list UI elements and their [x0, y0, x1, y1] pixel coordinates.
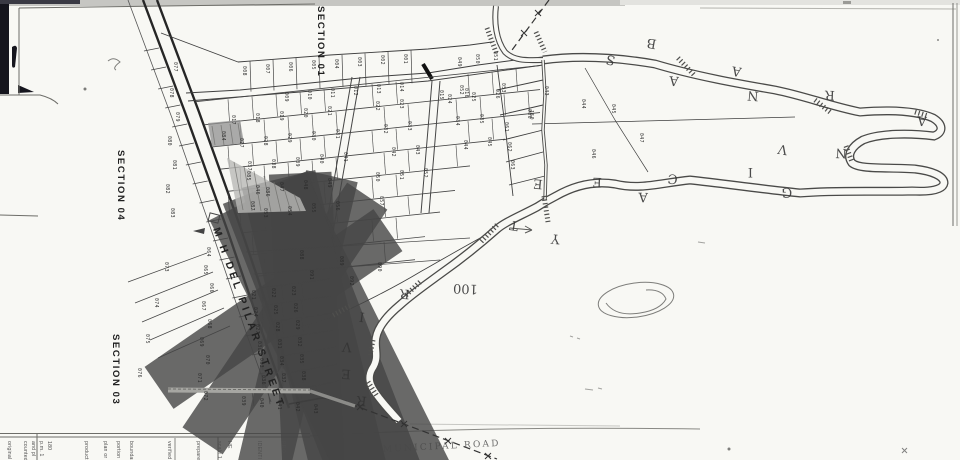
lot-number: 048 — [302, 180, 308, 190]
lot-number: 031 — [276, 339, 282, 349]
lot-number: 027 — [238, 138, 244, 148]
lot-number: 035 — [478, 114, 484, 124]
map-letter: R — [824, 87, 836, 102]
lot-number: 079 — [174, 112, 180, 122]
sheet-edges — [0, 3, 957, 460]
lot-number: 029 — [286, 133, 292, 143]
map-letter: N — [747, 87, 760, 103]
lot-100-label: 100 — [453, 280, 478, 296]
lot-number: 043 — [312, 404, 318, 414]
grid-line — [276, 141, 278, 162]
lot-number: 025 — [470, 92, 476, 102]
lot-number: 005 — [310, 60, 316, 70]
lot-number: 022 — [270, 288, 276, 298]
grid-line — [516, 69, 518, 91]
grid-line — [408, 150, 410, 171]
lot-number: 040 — [258, 398, 264, 408]
lot-number: 044 — [462, 140, 468, 150]
note-fragment: HE — [226, 441, 232, 449]
lot-number: 051 — [398, 170, 404, 180]
lot-number: 090 — [376, 262, 382, 272]
lot-number: 036 — [260, 375, 266, 385]
grid-line — [396, 218, 398, 239]
map-letter: E — [341, 366, 351, 381]
grid-line — [388, 52, 389, 85]
lot-number: 038 — [270, 159, 276, 169]
map-letter: E — [533, 175, 544, 191]
map-letter: N — [835, 145, 847, 160]
grid-line — [252, 144, 254, 165]
lot-number: 023 — [290, 286, 296, 296]
lot-number: 033 — [258, 358, 264, 368]
lot-number: 014 — [398, 82, 404, 92]
lot-number: 053 — [500, 83, 506, 93]
lot-number: 062 — [506, 142, 512, 152]
map-letter: V — [341, 338, 353, 354]
lot-number: 082 — [164, 184, 170, 194]
map-letter: R — [398, 285, 410, 301]
lot-number: 047 — [278, 182, 284, 192]
lot-number: 030 — [310, 131, 316, 141]
lot-number: 032 — [382, 124, 388, 134]
lot-number: 086 — [264, 187, 270, 197]
lot-number: 028 — [262, 136, 268, 146]
lot-number: 006 — [287, 62, 293, 72]
lot-number: 021 — [326, 106, 332, 116]
lot-number: 056 — [334, 201, 340, 211]
note-fragment: products — [83, 441, 89, 460]
lot-number: 054 — [286, 206, 292, 216]
lot-number: 076 — [136, 368, 142, 378]
map-letter: A — [730, 62, 743, 79]
grid-line — [228, 99, 230, 121]
map-letter: C — [667, 170, 678, 186]
lot-number: 016 — [463, 88, 469, 98]
lot-number: 035 — [298, 354, 304, 364]
lot-number: 061 — [503, 122, 509, 132]
lot-number: 017 — [230, 115, 236, 125]
lot-number: 024 — [252, 307, 258, 317]
lot-number: 015 — [438, 90, 444, 100]
lot-number: 050 — [474, 54, 480, 64]
lot-number: 037 — [246, 161, 252, 171]
lot-number: 046 — [590, 149, 596, 159]
grid-line — [196, 66, 540, 102]
map-letter: E — [592, 174, 602, 189]
lot-number: 150 — [528, 110, 534, 120]
lot-number: 029 — [294, 320, 300, 330]
lot-number: 027 — [254, 324, 260, 334]
benchmark-arrow — [193, 228, 205, 234]
lot-number: 020 — [302, 108, 308, 118]
scattered-map-letters: SBAANRAVNICEGAETYRIVER — [341, 34, 928, 408]
grid-line — [342, 55, 343, 87]
grid-line — [300, 92, 302, 114]
lot-number: 031 — [334, 129, 340, 139]
lot-number: 085 — [245, 171, 251, 181]
map-letter: B — [646, 34, 658, 50]
grid-line — [250, 61, 251, 91]
lot-number: 064 — [205, 247, 211, 257]
lot-number: 071 — [196, 373, 202, 383]
lot-number: 092 — [348, 276, 354, 286]
lot-number: 041 — [342, 152, 348, 162]
section-03-label: SECTION 03 — [110, 334, 121, 405]
lot-number: 042 — [390, 147, 396, 157]
lot-number: 066 — [208, 283, 214, 293]
lot-number: 026 — [292, 303, 298, 313]
map-letter: A — [668, 72, 680, 88]
grid-line — [372, 177, 374, 198]
grid-line — [396, 82, 398, 104]
lot-number: 049 — [456, 57, 462, 67]
grid-line — [411, 50, 412, 83]
lot-number: 026 — [494, 89, 500, 99]
map-letter: I — [748, 164, 753, 179]
lot-number: 010 — [306, 90, 312, 100]
lot-number: 042 — [294, 402, 300, 412]
lot-number: 053 — [262, 208, 268, 218]
grid-line — [300, 139, 302, 160]
grid-line — [492, 119, 494, 140]
lot-number: 089 — [338, 256, 344, 266]
lot-number: 046 — [254, 185, 260, 195]
lot-number: 011 — [329, 88, 335, 98]
grid-line — [372, 131, 374, 152]
lot-number: 047 — [638, 133, 644, 143]
lot-number: 033 — [406, 121, 412, 131]
note-fragment: portion used — [115, 441, 121, 460]
note-fragment: IDENTI — [256, 441, 262, 459]
map-letter: A — [916, 112, 928, 128]
lot-number: 024 — [446, 94, 452, 104]
grid-line — [135, 272, 213, 303]
note-fragment: 180 — [46, 441, 52, 450]
grid-line — [492, 72, 494, 94]
lot-number: 013 — [375, 84, 381, 94]
section-04-label: SECTION 04 — [115, 150, 126, 221]
lot-number: 070 — [204, 355, 210, 365]
lot-number: 007 — [264, 64, 270, 74]
grid-line — [384, 153, 386, 174]
lot-number: 091 — [308, 270, 314, 280]
grid-line — [365, 53, 366, 85]
scanner-artifacts — [0, 0, 960, 94]
grid-line — [372, 84, 374, 106]
note-fragment: PRO — [280, 441, 286, 453]
lot-number: 081 — [171, 160, 177, 170]
lot-number: 068 — [206, 319, 212, 329]
lot-number: 088 — [298, 250, 304, 260]
lot-number: 057 — [378, 196, 384, 206]
pencil-oval — [596, 278, 676, 322]
grid-line — [276, 94, 278, 116]
lot-number: 074 — [153, 298, 159, 308]
lot-number: 002 — [379, 55, 385, 65]
lot-number: 034 — [454, 116, 460, 126]
lot-number: 043 — [543, 86, 549, 96]
note-fragment: counted — [22, 441, 28, 460]
lot-number: 030 — [256, 341, 262, 351]
map-canvas: SECTION 01 SECTION 04 SECTION 03 M H DEL… — [0, 0, 960, 460]
grid-line — [324, 89, 326, 111]
lot-number: 043 — [414, 145, 420, 155]
lot-number: 041 — [276, 400, 282, 410]
section-01-label: SECTION 01 — [315, 6, 326, 77]
grid-line — [396, 129, 398, 150]
lot-number: 008 — [241, 66, 247, 76]
lot-number: 065 — [202, 265, 208, 275]
note-fragment: prepared — [195, 441, 201, 460]
lot-number: 045 — [610, 104, 616, 114]
lot-number: 075 — [144, 334, 150, 344]
lot-number: 039 — [240, 396, 246, 406]
note-fragment: and pl — [30, 441, 36, 456]
lot-number: 069 — [198, 337, 204, 347]
x-marks — [357, 10, 907, 459]
lot-number: 019 — [278, 111, 284, 121]
note-fragment: plan or being — [102, 441, 108, 460]
lot-number: 022 — [374, 101, 380, 111]
note-fragment: original — [6, 441, 12, 459]
lot-number: 063 — [509, 160, 515, 170]
lot-number: 044 — [580, 99, 586, 109]
grid-line — [273, 60, 274, 91]
lot-number: 025 — [272, 305, 278, 315]
lot-number: 045 — [486, 137, 492, 147]
lot-number: 028 — [274, 322, 280, 332]
lot-number: 003 — [356, 57, 362, 67]
map-letter: S — [605, 51, 617, 68]
lot-number: 009 — [283, 92, 289, 102]
generated-grid — [128, 48, 540, 406]
lot-number: 001 — [402, 54, 408, 64]
lot-number: 040 — [318, 154, 324, 164]
lot-number: 039 — [294, 157, 300, 167]
lot-number: 021 — [250, 290, 256, 300]
grid-line — [504, 94, 506, 115]
map-letter: V — [776, 140, 789, 157]
grid-line — [396, 175, 398, 196]
lot-number: 051 — [492, 51, 498, 61]
map-letter: A — [638, 189, 650, 204]
lot-number: 038 — [300, 371, 306, 381]
note-fragment: p.m. 1 — [38, 441, 44, 457]
lot-number: 078 — [168, 88, 174, 98]
pencil-scribble — [108, 59, 120, 70]
lot-number: 037 — [280, 373, 286, 383]
note-fragment: scale 1 — [216, 441, 222, 459]
lot-number: 077 — [172, 62, 178, 72]
lot-number: 080 — [166, 136, 172, 146]
lot-number: 083 — [169, 208, 175, 218]
lot-number: 087 — [249, 201, 255, 211]
grid-line — [200, 200, 215, 203]
lot-number: 034 — [278, 356, 284, 366]
lot-number: 073 — [163, 262, 169, 272]
grid-line — [252, 97, 254, 119]
note-fragment: boundaries — [128, 441, 134, 460]
pencil-oval-inner — [606, 290, 666, 314]
grid-line — [408, 196, 410, 214]
lot-number: 072 — [202, 391, 208, 401]
lot-number: 052 — [422, 168, 428, 178]
scanned-cadastral-map: SECTION 01 SECTION 04 SECTION 03 M H DEL… — [0, 0, 960, 460]
map-letter: Y — [550, 230, 561, 246]
grid-line — [324, 136, 326, 157]
lot-number: 055 — [310, 203, 316, 213]
grid-line — [456, 145, 458, 166]
lot-number: 004 — [333, 59, 339, 69]
map-letter: G — [781, 184, 792, 199]
lot-number: 012 — [352, 86, 358, 96]
lot-number: 084 — [220, 131, 226, 141]
lot-number: 049 — [326, 178, 332, 188]
lot-number: 032 — [296, 337, 302, 347]
note-fragment: verified — [166, 441, 172, 459]
lot-number: 067 — [200, 301, 206, 311]
lot-number: 023 — [398, 99, 404, 109]
lot-number: 018 — [254, 113, 260, 123]
lot-number: 050 — [374, 172, 380, 182]
grid-line — [468, 121, 470, 142]
